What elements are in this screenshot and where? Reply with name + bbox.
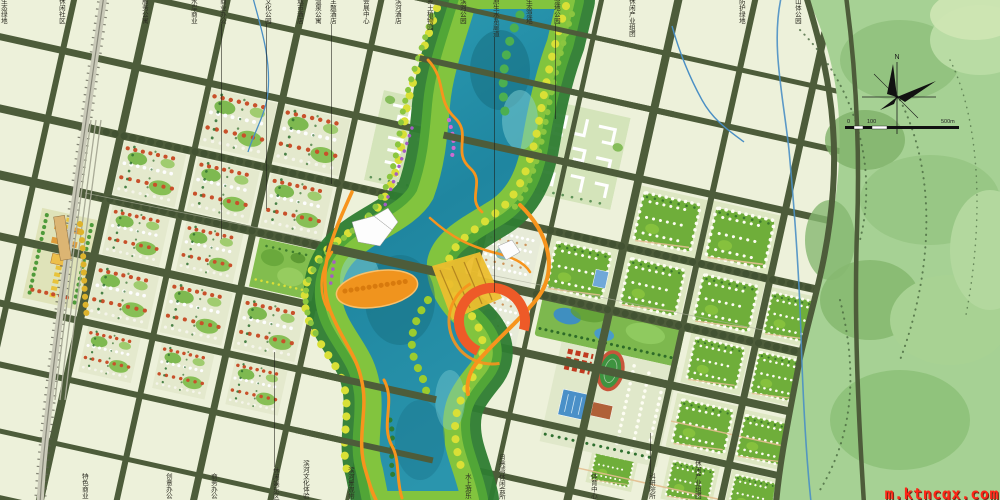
scale-tick-100: 100 <box>867 119 876 125</box>
map-canvas <box>0 0 1000 500</box>
scale-tick-0: 0 <box>847 119 850 125</box>
scale-tick-500m: 500m <box>941 119 955 125</box>
scale-bar: 0 100 500m <box>845 116 963 136</box>
watermark: m.ktncqx.com <box>885 485 999 500</box>
north-blade <box>887 64 897 97</box>
north-label: N <box>894 54 899 61</box>
master-plan-map: 生态绿地 休闲社区 服务公寓 水岸商业 商业办公 文化公园 城市酒店 温泉公寓 … <box>0 0 1000 500</box>
east-blade <box>897 81 936 102</box>
